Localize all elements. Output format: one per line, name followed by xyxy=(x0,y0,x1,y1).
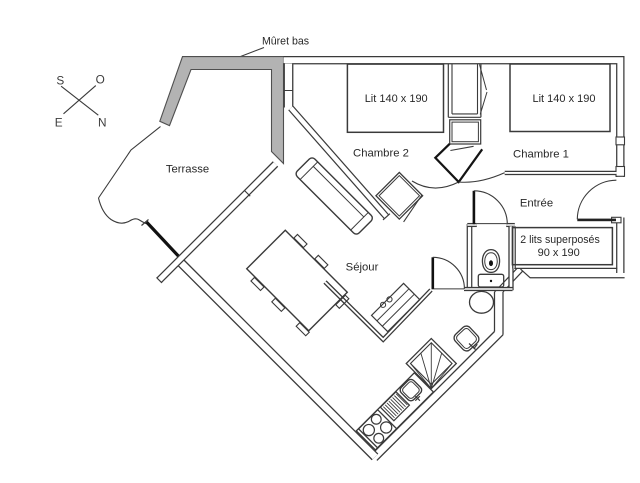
svg-text:Lit 140 x 190: Lit 140 x 190 xyxy=(533,93,596,105)
svg-text:S: S xyxy=(56,73,64,87)
svg-text:2 lits superposés: 2 lits superposés xyxy=(520,234,600,246)
svg-text:Chambre 1: Chambre 1 xyxy=(513,149,569,161)
svg-text:Terrasse: Terrasse xyxy=(166,164,209,176)
svg-text:O: O xyxy=(96,73,105,87)
svg-text:N: N xyxy=(98,115,107,129)
svg-text:Mûret bas: Mûret bas xyxy=(262,36,309,48)
svg-text:E: E xyxy=(55,115,63,129)
svg-text:Entrée: Entrée xyxy=(520,198,553,210)
svg-text:Lit 140 x 190: Lit 140 x 190 xyxy=(365,93,428,105)
svg-text:Séjour: Séjour xyxy=(346,262,379,274)
svg-text:90 x 190: 90 x 190 xyxy=(538,247,580,259)
svg-text:Chambre 2: Chambre 2 xyxy=(353,148,409,160)
